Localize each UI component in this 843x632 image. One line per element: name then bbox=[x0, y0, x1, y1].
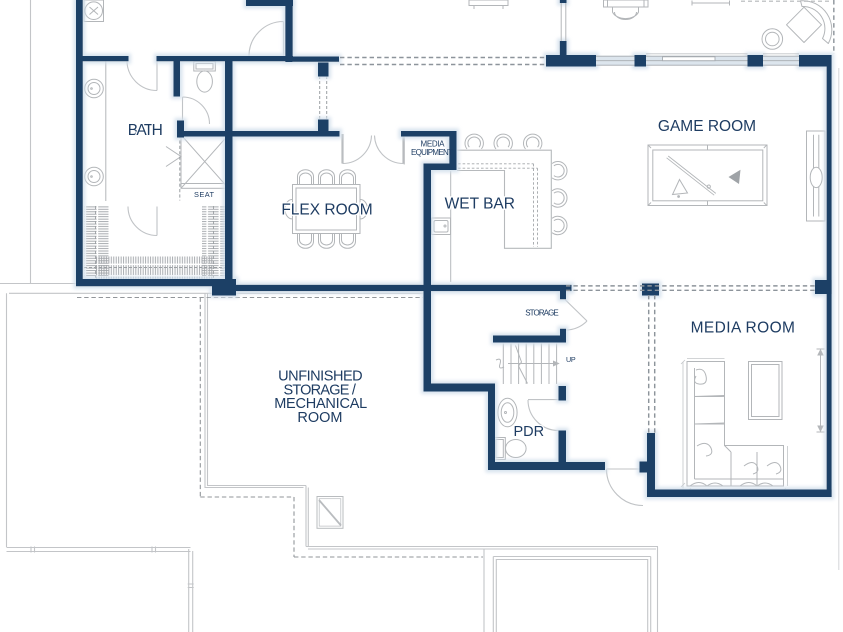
svg-text:WET BAR: WET BAR bbox=[445, 195, 515, 212]
svg-text:UP: UP bbox=[566, 355, 576, 364]
svg-text:MEDIA ROOM: MEDIA ROOM bbox=[691, 319, 796, 336]
svg-text:EQUIPMENT: EQUIPMENT bbox=[411, 148, 453, 157]
svg-text:BATH: BATH bbox=[128, 122, 163, 139]
svg-text:STORAGE: STORAGE bbox=[525, 309, 559, 318]
svg-text:PDR: PDR bbox=[513, 424, 544, 440]
svg-text:FLEX ROOM: FLEX ROOM bbox=[281, 202, 372, 219]
svg-text:ROOM: ROOM bbox=[297, 410, 342, 426]
svg-text:GAME ROOM: GAME ROOM bbox=[658, 118, 756, 135]
svg-text:SEAT: SEAT bbox=[194, 190, 214, 199]
